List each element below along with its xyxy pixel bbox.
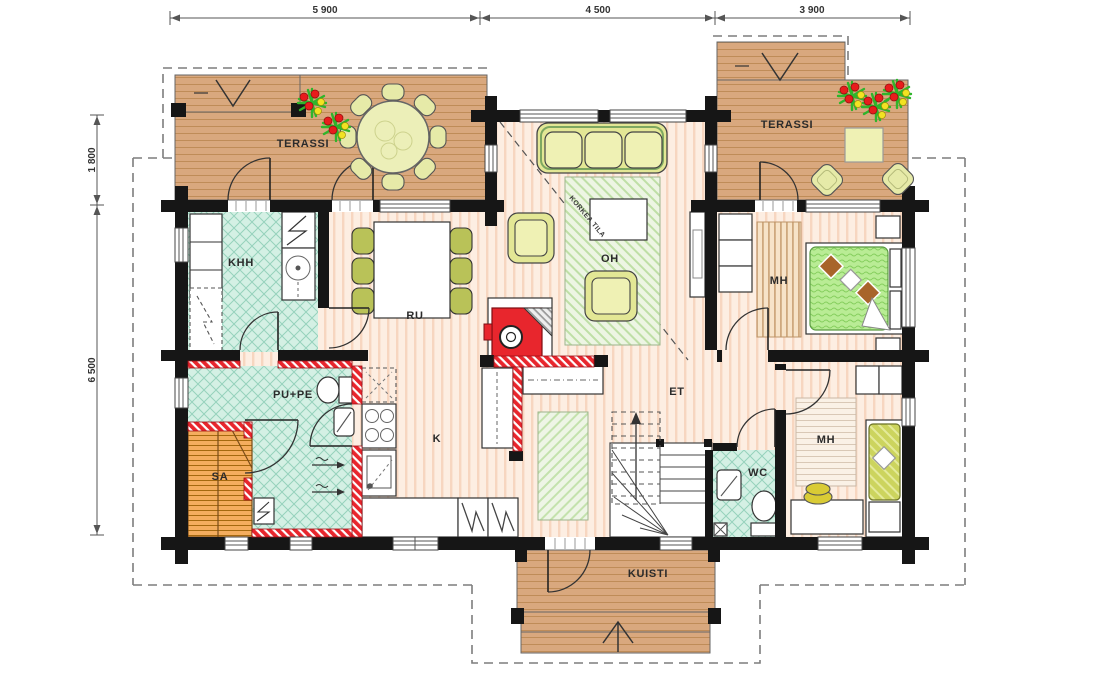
floor-drain-icon	[714, 523, 727, 536]
window	[520, 110, 598, 122]
ironing-space	[190, 288, 222, 352]
window	[175, 228, 188, 262]
room-label-k: K	[433, 433, 442, 445]
window	[485, 145, 497, 172]
khh-cabinet	[190, 214, 222, 300]
double-bed	[806, 243, 903, 334]
room-label-ru: RU	[406, 310, 423, 322]
window	[806, 200, 880, 212]
armchair	[585, 271, 637, 321]
sofa	[537, 123, 667, 173]
round-table-set	[340, 84, 446, 190]
hall-rug	[538, 412, 588, 520]
fireplace	[484, 298, 552, 360]
room-label-oh: OH	[601, 253, 619, 265]
dining-chair	[450, 288, 472, 314]
dimension-left: 1 800 6 500	[87, 115, 104, 535]
stove	[362, 404, 396, 448]
sauna-heater	[254, 498, 274, 524]
sink-icon	[717, 470, 741, 500]
floor-plan: 5 900 4 500 3 900 1 800 6 500	[0, 0, 1100, 680]
window	[902, 248, 915, 327]
room-label-mh-top: MH	[770, 275, 789, 287]
hall-closet	[523, 366, 603, 394]
toilet-icon	[317, 377, 352, 403]
dim-left-2: 6 500	[87, 357, 98, 382]
wardrobe	[719, 214, 752, 292]
room-label-sa: SA	[212, 471, 229, 483]
dining-chair	[352, 228, 374, 254]
room-label-khh: KHH	[228, 257, 254, 269]
dim-left-1: 1 800	[87, 147, 98, 172]
terrace-table	[845, 128, 883, 162]
desk-chair	[804, 483, 832, 504]
window	[393, 537, 438, 550]
toilet-icon	[751, 491, 777, 536]
window	[818, 537, 862, 550]
window	[225, 537, 248, 550]
deck-post	[511, 608, 524, 624]
window	[175, 378, 188, 408]
dining-chair	[450, 228, 472, 254]
window	[660, 537, 692, 550]
dining-chair	[352, 288, 374, 314]
washing-machine	[282, 212, 315, 248]
room-label-mh-bottom: MH	[817, 434, 836, 446]
dryer	[282, 248, 315, 300]
nightstand	[876, 216, 900, 238]
freezer	[488, 498, 518, 537]
tall-cabinet	[482, 368, 513, 448]
kitchen-counter	[362, 498, 458, 537]
room-label-kuisti: KUISTI	[628, 568, 668, 580]
porch-kuisti	[511, 550, 721, 653]
tv-bench	[690, 212, 705, 297]
window	[290, 537, 312, 550]
sink-icon	[334, 408, 354, 436]
fridge	[458, 498, 488, 537]
dining-chair	[450, 258, 472, 284]
dim-top-2: 4 500	[585, 5, 610, 16]
floor-plan-svg: 5 900 4 500 3 900 1 800 6 500	[0, 0, 1100, 680]
window	[902, 398, 915, 426]
dining-chair	[352, 258, 374, 284]
deck-post	[291, 103, 306, 117]
room-label-terassi-left: TERASSI	[277, 138, 330, 150]
desk	[791, 500, 863, 534]
room-label-terassi-right: TERASSI	[761, 119, 814, 131]
window	[610, 110, 686, 122]
window	[380, 200, 450, 212]
single-bed	[866, 420, 903, 537]
dining-table	[374, 222, 450, 318]
room-label-pu-pe: PU+PE	[273, 389, 313, 401]
room-label-wc: WC	[748, 467, 768, 479]
dimension-top: 5 900 4 500 3 900	[170, 5, 910, 25]
dim-top-3: 3 900	[799, 5, 824, 16]
dining-furniture	[352, 222, 472, 318]
wardrobe	[879, 366, 902, 394]
dim-top-1: 5 900	[312, 5, 337, 16]
window	[705, 145, 717, 172]
kitchen-sink	[362, 450, 396, 496]
wardrobe	[856, 366, 879, 394]
armchair	[508, 213, 554, 263]
deck-post	[708, 608, 721, 624]
room-label-et: ET	[669, 386, 684, 398]
deck-post	[171, 103, 186, 117]
